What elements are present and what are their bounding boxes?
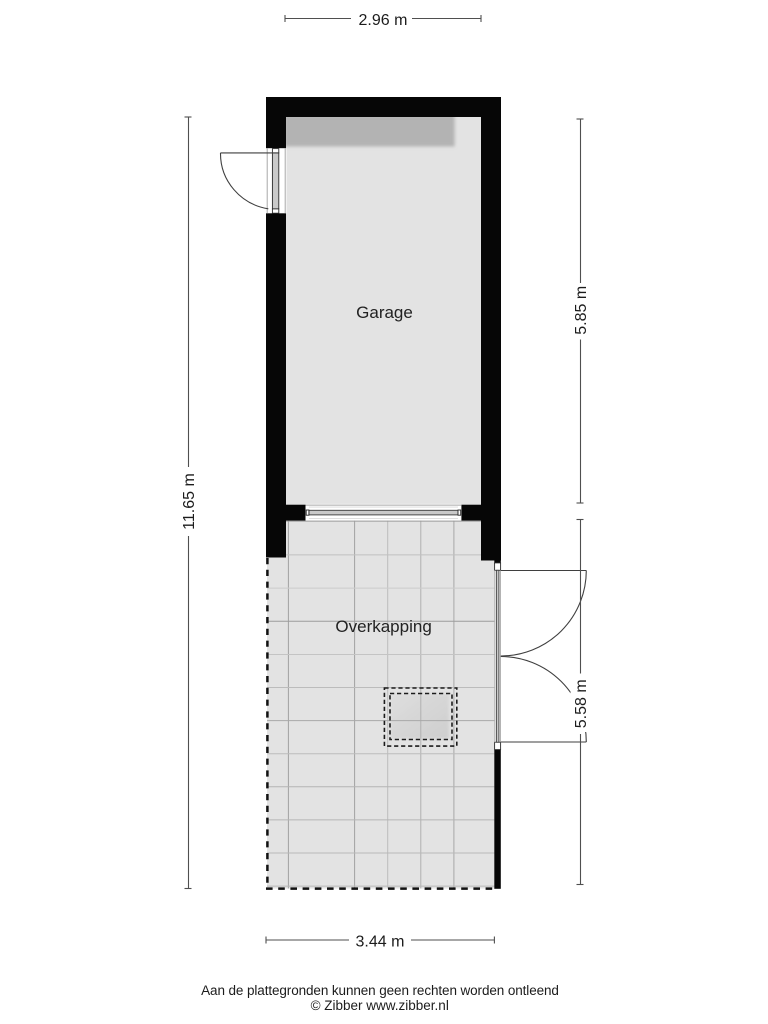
svg-text:© Zibber www.zibber.nl: © Zibber www.zibber.nl [311, 998, 449, 1013]
svg-text:Overkapping: Overkapping [335, 617, 431, 636]
svg-text:5.85 m: 5.85 m [573, 286, 590, 335]
svg-text:Aan de plattegronden kunnen ge: Aan de plattegronden kunnen geen rechten… [201, 983, 559, 998]
svg-text:11.65 m: 11.65 m [181, 473, 198, 530]
svg-text:5.58 m: 5.58 m [573, 679, 590, 728]
svg-text:Garage: Garage [356, 303, 413, 322]
svg-text:3.44 m: 3.44 m [356, 933, 405, 950]
svg-text:2.96 m: 2.96 m [359, 12, 408, 29]
